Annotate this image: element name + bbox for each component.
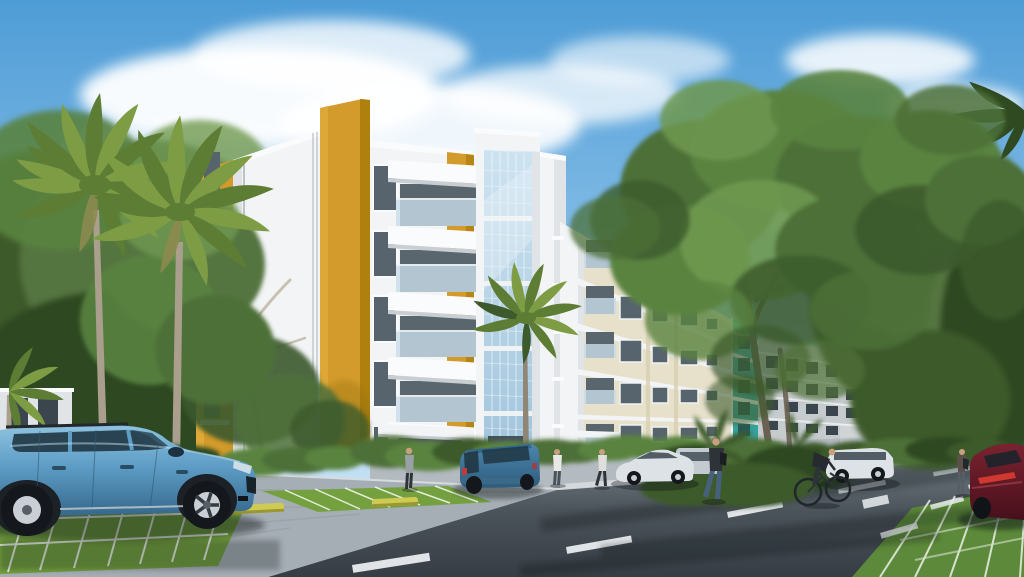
palm-crown [516,312,536,324]
architectural-rendering [0,0,1024,577]
wheel-rim [631,475,637,481]
wheel-rim [875,471,881,477]
palm-crown [79,175,111,195]
person-shadow [402,488,418,492]
compact-blue-suv [453,444,543,499]
wheel [520,474,534,490]
palm-crown [165,203,195,221]
person-bag [963,458,969,470]
person-head [959,449,965,455]
railing-glass [396,330,480,357]
taillight [462,468,467,475]
person-torso [598,455,607,471]
wheel-hub [22,505,32,515]
person-head [712,438,719,445]
person-torso [553,455,562,471]
wheel-rim [675,474,681,480]
railing-glass [396,264,480,292]
person-shadow [702,499,726,505]
person-bag [720,452,727,466]
person-head [406,448,412,454]
person-head [599,449,605,455]
person-shadow [955,494,971,498]
cyclist-head [829,449,836,456]
side-mirror [168,447,184,457]
wheel-hub [203,501,211,509]
corner-column-shade [578,232,584,458]
taillight [532,463,537,469]
person-shadow [594,486,610,490]
wheel [466,476,482,494]
railing-glass [396,395,480,422]
cloud [190,20,470,90]
railing-glass [396,198,480,226]
door-handle [120,465,134,469]
wheel [973,497,991,519]
person-head [554,449,560,455]
window [38,398,58,428]
cloud [550,36,730,84]
grille [246,476,256,494]
car-windows [834,452,886,460]
rendering-canvas [0,0,1024,577]
door-handle [176,470,188,474]
person-torso [405,455,414,473]
door-handle [52,466,66,470]
balconies [388,160,482,458]
fog-light [238,496,248,501]
